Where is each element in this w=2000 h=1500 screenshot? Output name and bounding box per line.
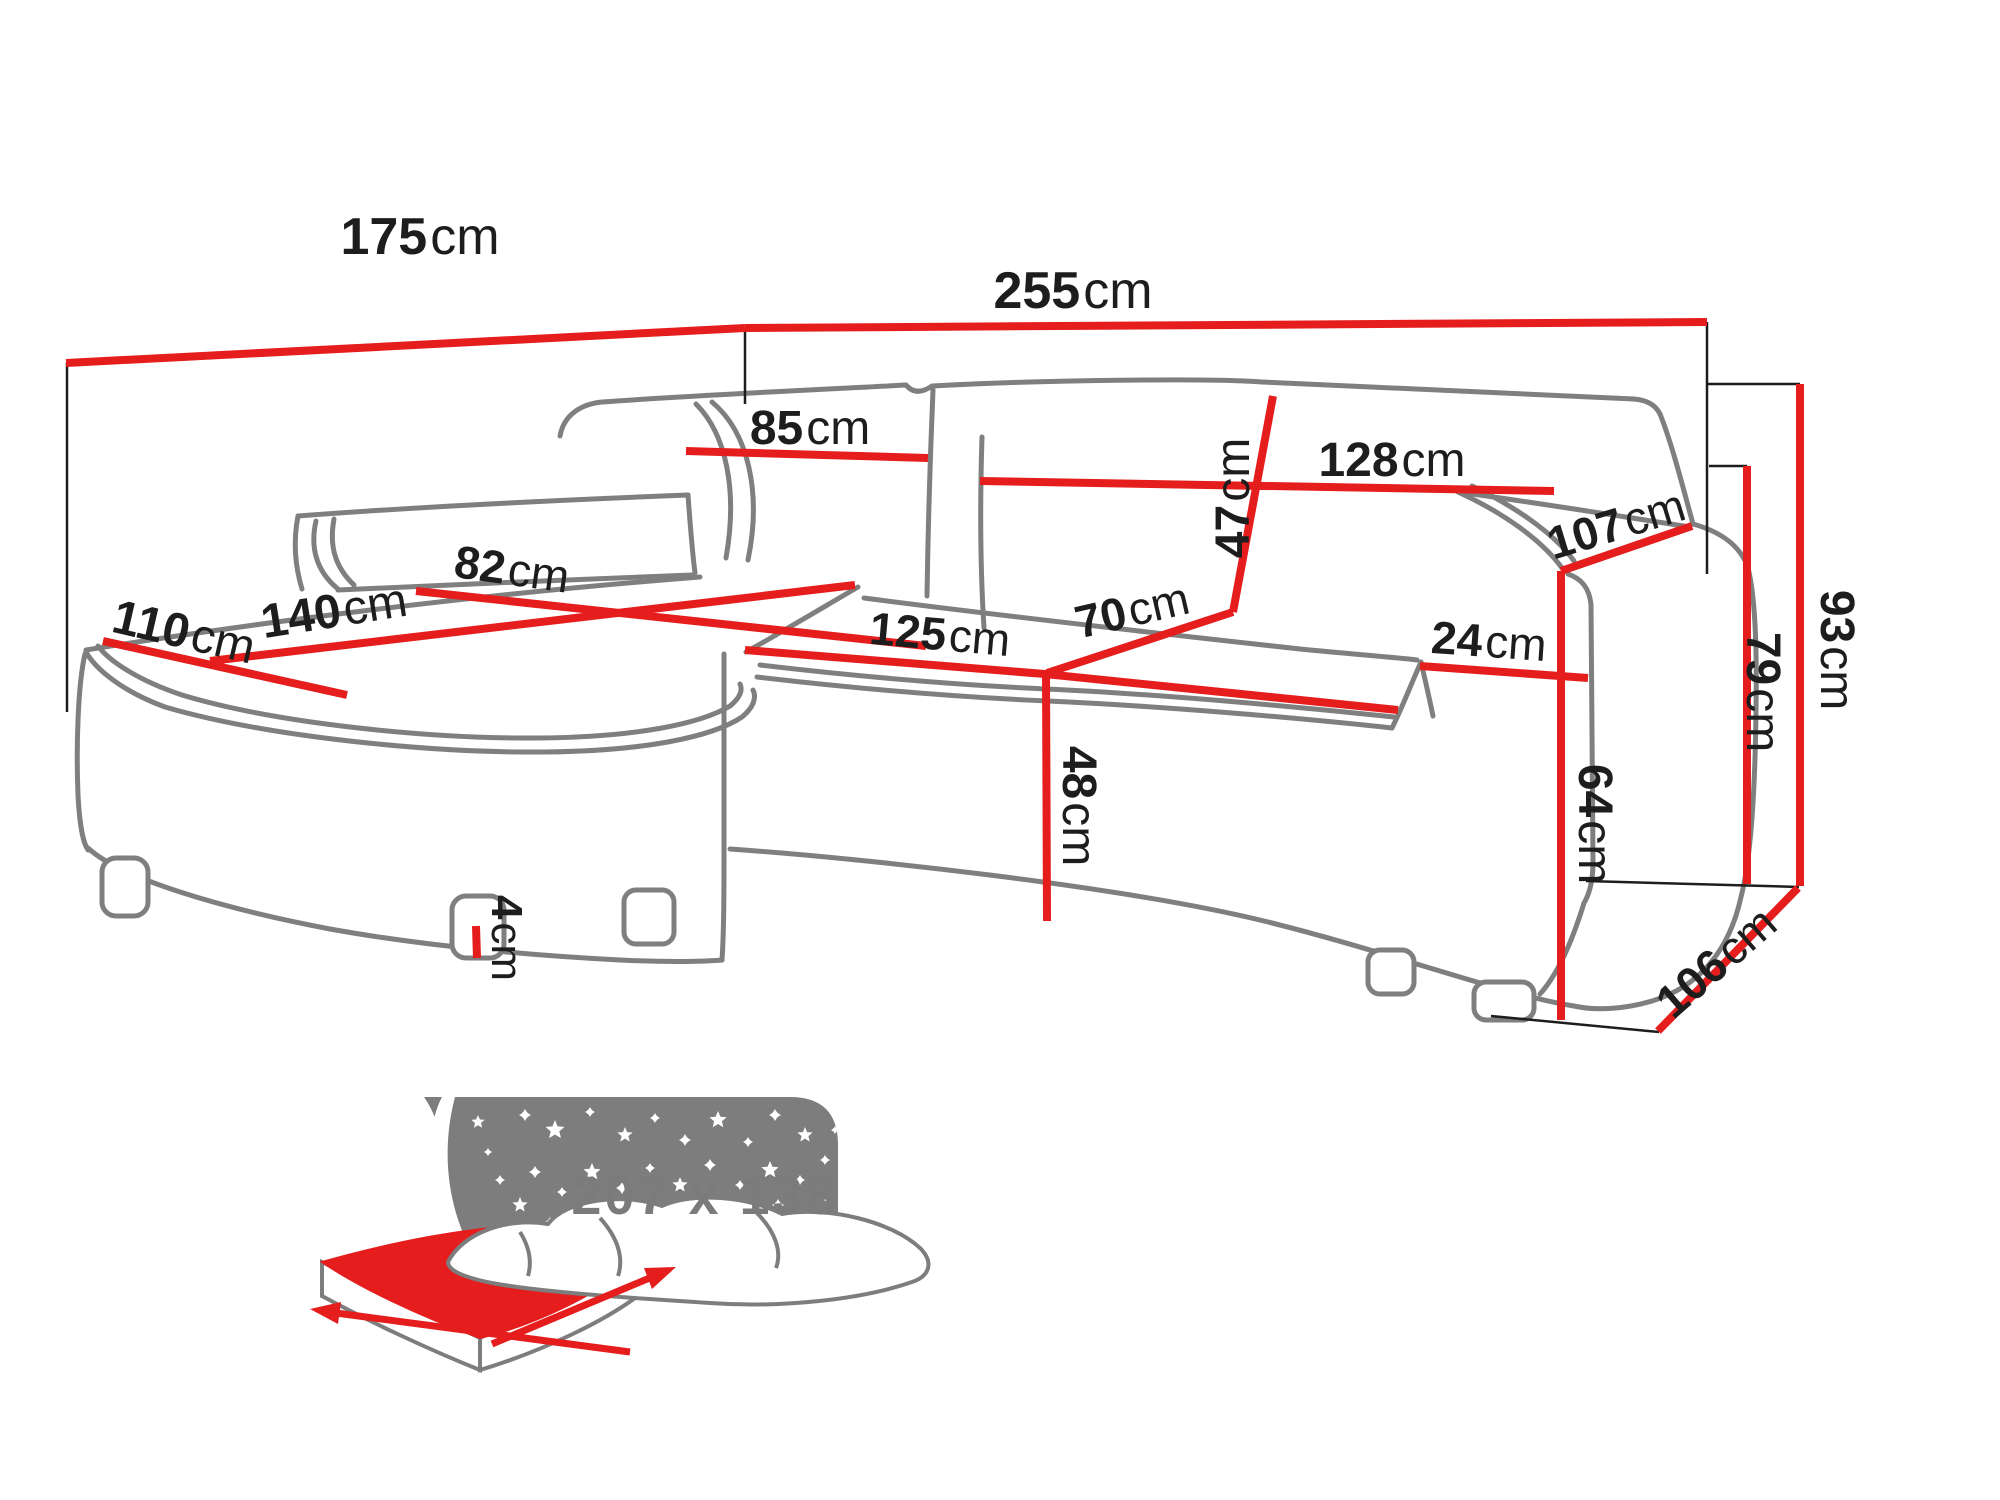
seat-front-inner [760, 665, 1394, 717]
sofa-leg [102, 858, 148, 916]
left-armrest-top [298, 495, 688, 516]
dim-label-85: 85cm [750, 402, 870, 455]
dim-line-128 [980, 481, 1554, 491]
sofa-dimension-diagram-page: 175cm 255cm 85cm 128cm 47cm 107cm 24cm 6… [0, 0, 2000, 1500]
dim-label-106: 106cm [1646, 896, 1787, 1028]
size-arrow-left-head [310, 1302, 341, 1324]
dim-line-47 [1233, 396, 1273, 612]
sofa-back-top-edge [560, 380, 1660, 436]
dim-label-24: 24cm [1430, 611, 1549, 671]
dim-line-175 [66, 328, 745, 363]
dim-label-128: 128cm [1318, 434, 1465, 487]
left-armrest-left-edge [295, 516, 302, 589]
sofa-leg [624, 890, 674, 944]
dim-label-93: 93cm [1810, 590, 1863, 710]
dim-label-4: 4cm [482, 895, 531, 981]
dim-line-82 [416, 591, 926, 646]
sofa-leg [1368, 950, 1414, 994]
sleeping-function-icon [310, 1097, 928, 1370]
left-armrest-right-edge [688, 495, 695, 573]
dim-label-64: 64cm [1568, 764, 1621, 884]
dim-label-47: 47cm [1207, 438, 1260, 558]
dim-line-4 [476, 926, 477, 958]
chaise-front-top-outer [86, 652, 755, 752]
dim-label-175: 175cm [340, 208, 499, 266]
sleeping-area-label: 207 x 138 [571, 1166, 838, 1226]
back-cushion-seam [927, 390, 933, 596]
sofa-front-bottom-edge [730, 849, 1574, 1006]
left-armrest-inner-arc [332, 519, 354, 585]
dim-label-79: 79cm [1736, 632, 1789, 752]
back-cushion-corner-arc [712, 402, 753, 560]
dim-line-255 [745, 322, 1707, 328]
chaise-left-edge [77, 654, 88, 850]
sofa-legs [102, 858, 1534, 1020]
right-cushion-seam [981, 437, 984, 628]
dim-label-125: 125cm [867, 602, 1012, 666]
sofa-leg [1474, 982, 1534, 1020]
floor-line-lower [1491, 1016, 1659, 1032]
chaise-right-face-edge [722, 848, 724, 960]
dim-line-48 [1046, 673, 1047, 921]
dim-label-82: 82cm [451, 535, 573, 603]
dim-label-48: 48cm [1052, 746, 1105, 866]
seat-right-corner [1392, 662, 1421, 728]
back-cushion-corner-arc [696, 404, 731, 558]
dim-label-255: 255cm [993, 262, 1152, 320]
dimension-labels: 175cm 255cm 85cm 128cm 47cm 107cm 24cm 6… [108, 208, 1863, 1028]
sofa-dimension-diagram: 175cm 255cm 85cm 128cm 47cm 107cm 24cm 6… [0, 0, 2000, 1500]
